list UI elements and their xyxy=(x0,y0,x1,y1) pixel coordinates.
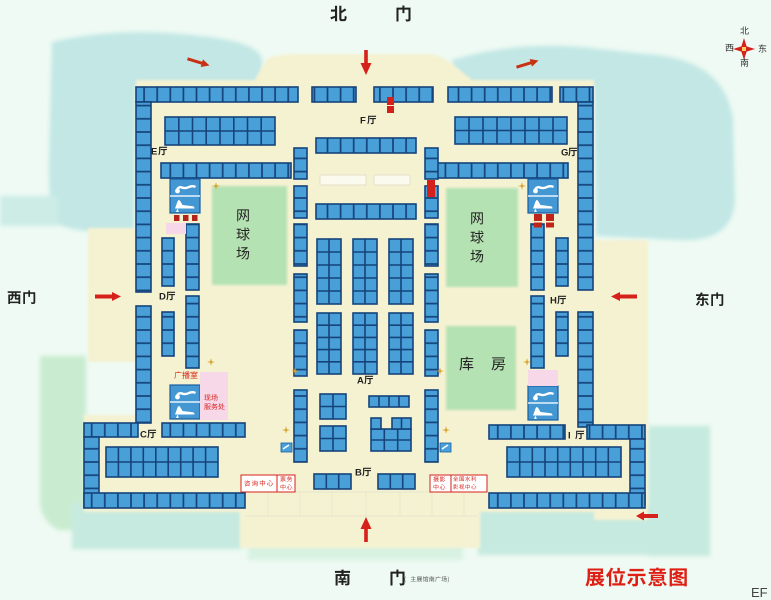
svg-text:C: C xyxy=(140,430,147,441)
svg-text:F: F xyxy=(360,116,366,127)
svg-text:H: H xyxy=(550,296,557,307)
svg-text:D: D xyxy=(159,292,166,303)
svg-text:B: B xyxy=(355,468,362,479)
svg-text:G: G xyxy=(561,148,568,159)
svg-text:A: A xyxy=(357,376,364,387)
svg-text:E: E xyxy=(151,147,157,158)
svg-text:I: I xyxy=(568,431,571,442)
svg-text:EF: EF xyxy=(751,585,768,600)
